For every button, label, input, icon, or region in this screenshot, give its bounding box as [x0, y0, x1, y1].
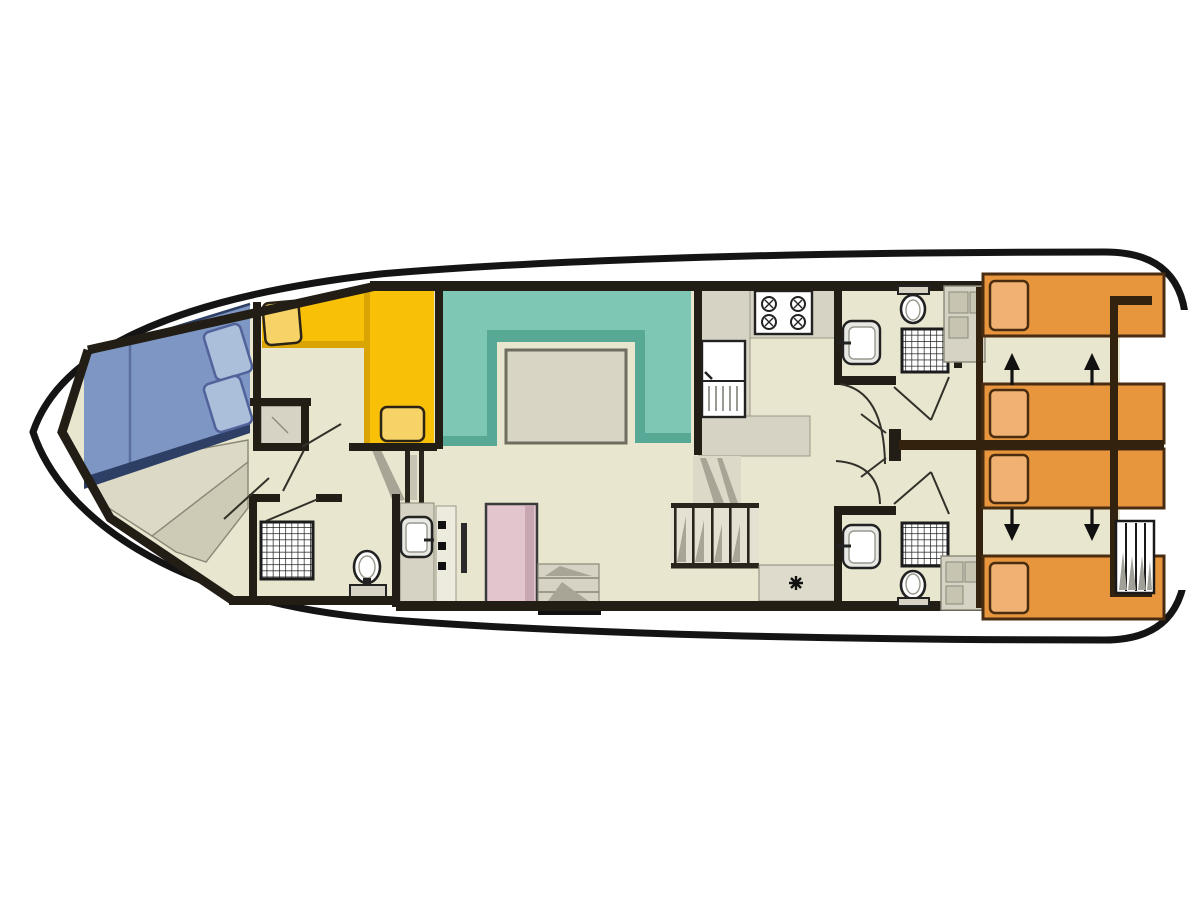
berth-shade [364, 287, 370, 443]
center-wall [899, 440, 1164, 450]
stair-rail [671, 503, 759, 509]
floor-plan-stage [0, 0, 1200, 900]
saloon [441, 287, 691, 446]
houseboat-floor-plan [0, 0, 1200, 900]
washbasin-bowl [849, 327, 875, 359]
sofa-shade [441, 436, 497, 446]
toilet-seat [906, 574, 920, 594]
sofa-shade [497, 330, 635, 342]
toilet-seat [906, 300, 920, 320]
control-panel [436, 506, 456, 604]
shower-grid [261, 522, 313, 579]
knob-icon [438, 562, 446, 570]
pillow [381, 407, 424, 441]
nightstand [261, 406, 302, 444]
shower-grid [902, 329, 948, 372]
counter [699, 416, 810, 456]
knob-icon [438, 521, 446, 529]
toilet-base [350, 585, 386, 597]
washbasin-bowl [406, 523, 427, 552]
stove-burner-icon [762, 297, 776, 311]
wardrobe-pink-shade [525, 506, 534, 604]
bow-step-shade [410, 455, 417, 500]
pillow [990, 455, 1028, 503]
saloon-table [506, 350, 626, 443]
pillow [990, 390, 1028, 437]
star-icon [789, 576, 803, 590]
washbasin-bowl [849, 531, 875, 563]
stove-burner-icon [791, 315, 805, 329]
stair-rail [671, 563, 759, 569]
bow-step-wall [405, 448, 410, 503]
stove-burner-icon [762, 315, 776, 329]
boarding-ladder [1116, 521, 1154, 593]
locker-shelf [949, 292, 968, 313]
toilet-dot [363, 578, 371, 584]
sofa-shade [487, 330, 497, 446]
locker-shelf [949, 317, 968, 338]
sofa-shade [635, 330, 645, 443]
sofa-shade [635, 433, 691, 443]
stove-burner-icon [791, 297, 805, 311]
bow-step-wall [419, 448, 424, 503]
locker-shelf [946, 586, 963, 604]
knob-icon [438, 542, 446, 550]
toilet-tank [898, 286, 929, 294]
locker-shelf [946, 562, 963, 582]
toilet-seat [359, 556, 375, 578]
toilet-tank [898, 598, 929, 606]
pillow [990, 563, 1028, 613]
pillow [990, 281, 1028, 330]
handle-bar [461, 523, 467, 573]
